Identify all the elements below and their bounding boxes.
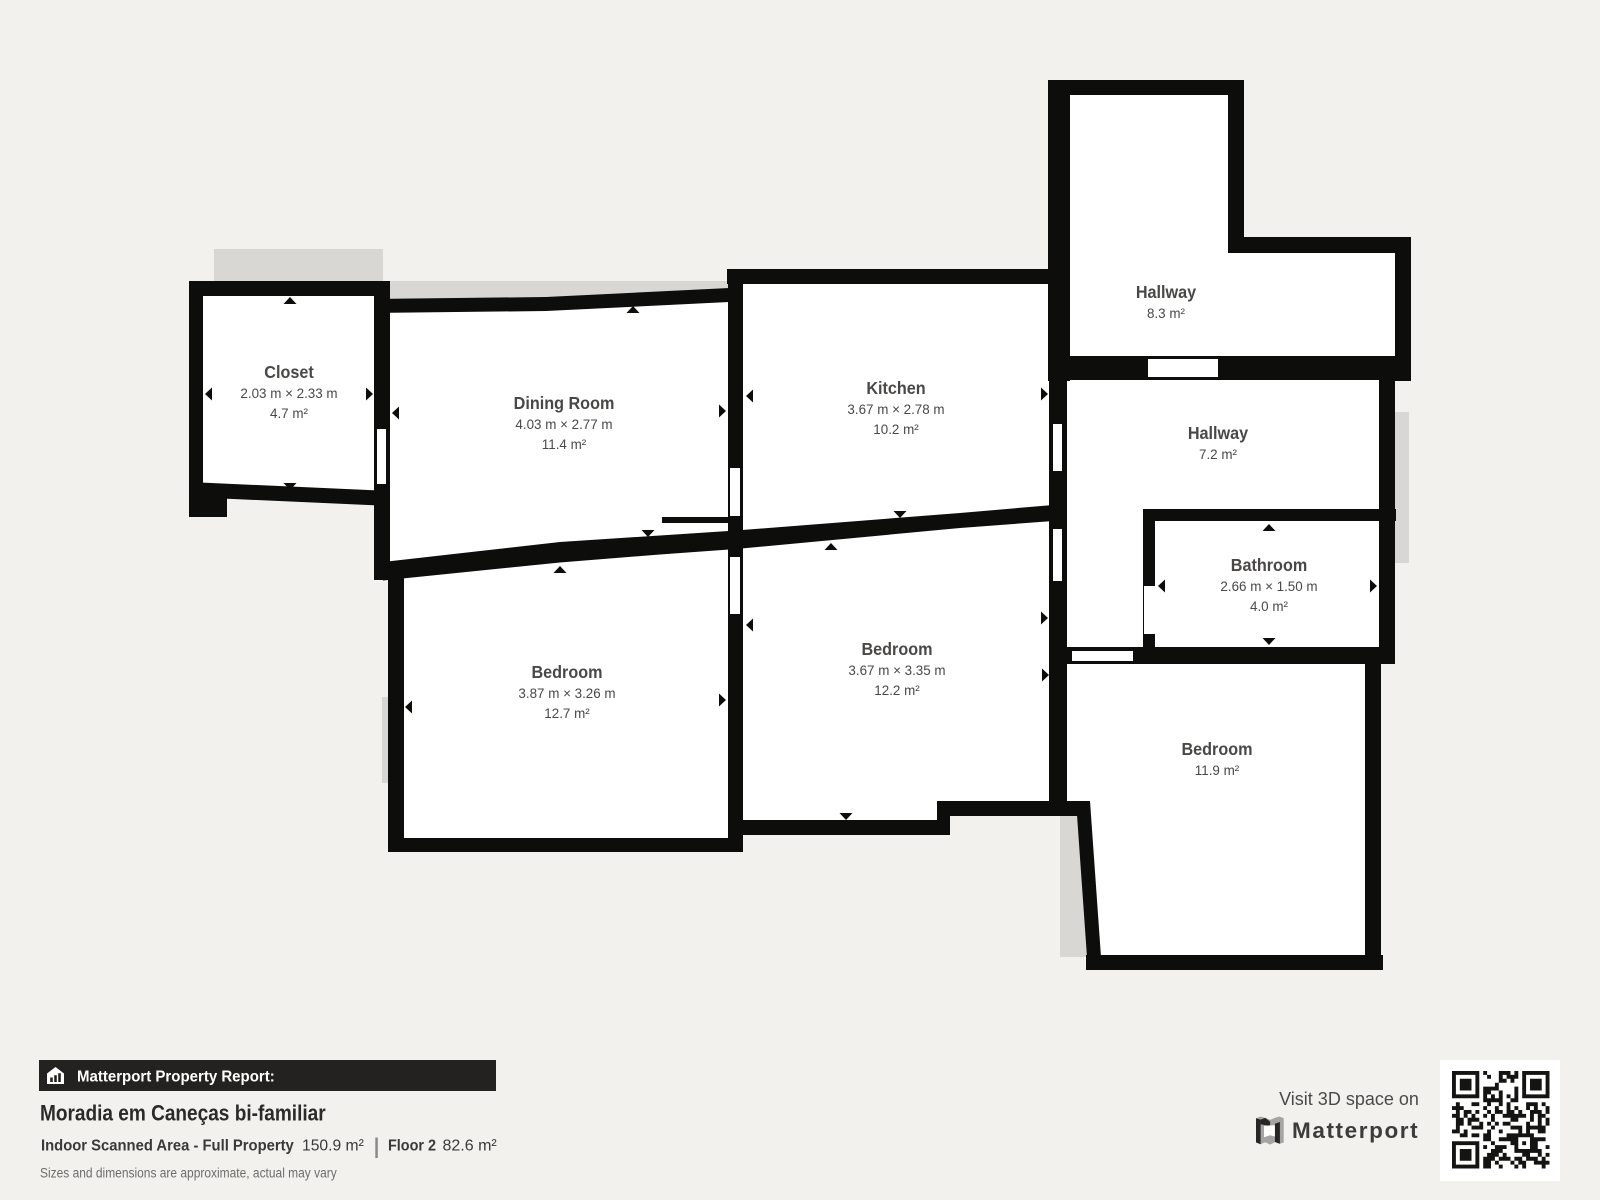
- svg-text:Hallway: Hallway: [1136, 282, 1197, 302]
- svg-text:Bathroom: Bathroom: [1231, 555, 1307, 575]
- svg-text:Indoor Scanned Area - Full Pro: Indoor Scanned Area - Full Property: [41, 1137, 294, 1155]
- svg-text:Bedroom: Bedroom: [531, 662, 602, 682]
- svg-text:Bedroom: Bedroom: [861, 639, 932, 659]
- svg-text:11.9 m²: 11.9 m²: [1195, 763, 1240, 778]
- svg-text:4.0 m²: 4.0 m²: [1250, 599, 1288, 614]
- svg-text:Floor 2: Floor 2: [388, 1137, 436, 1155]
- svg-text:3.67 m × 3.35 m: 3.67 m × 3.35 m: [848, 663, 945, 678]
- svg-text:4.03 m × 2.77 m: 4.03 m × 2.77 m: [515, 417, 612, 432]
- svg-text:Bedroom: Bedroom: [1181, 739, 1252, 759]
- svg-text:12.7 m²: 12.7 m²: [544, 706, 590, 721]
- svg-text:3.67 m × 2.78 m: 3.67 m × 2.78 m: [847, 402, 944, 417]
- svg-text:2.03 m × 2.33 m: 2.03 m × 2.33 m: [240, 386, 337, 401]
- svg-text:Sizes and dimensions are appro: Sizes and dimensions are approximate, ac…: [40, 1165, 337, 1181]
- svg-text:Visit 3D space on: Visit 3D space on: [1279, 1089, 1419, 1109]
- svg-text:150.9 m²: 150.9 m²: [302, 1137, 364, 1154]
- svg-text:Moradia em Caneças bi-familiar: Moradia em Caneças bi-familiar: [40, 1101, 326, 1126]
- svg-text:11.4 m²: 11.4 m²: [542, 437, 587, 452]
- svg-text:Matterport: Matterport: [1292, 1118, 1419, 1143]
- svg-text:2.66 m × 1.50 m: 2.66 m × 1.50 m: [1220, 579, 1317, 594]
- svg-text:Dining Room: Dining Room: [514, 393, 615, 413]
- svg-text:Hallway: Hallway: [1188, 423, 1249, 443]
- svg-text:12.2 m²: 12.2 m²: [874, 683, 920, 698]
- svg-text:4.7 m²: 4.7 m²: [270, 406, 308, 421]
- svg-text:7.2 m²: 7.2 m²: [1199, 447, 1237, 462]
- svg-text:3.87 m × 3.26 m: 3.87 m × 3.26 m: [518, 686, 615, 701]
- svg-text:8.3 m²: 8.3 m²: [1147, 306, 1185, 321]
- svg-text:Kitchen: Kitchen: [866, 378, 925, 398]
- svg-text:Matterport Property Report:: Matterport Property Report:: [77, 1068, 275, 1085]
- svg-text:82.6 m²: 82.6 m²: [443, 1138, 498, 1155]
- svg-text:10.2 m²: 10.2 m²: [873, 422, 919, 437]
- svg-text:Closet: Closet: [264, 362, 314, 382]
